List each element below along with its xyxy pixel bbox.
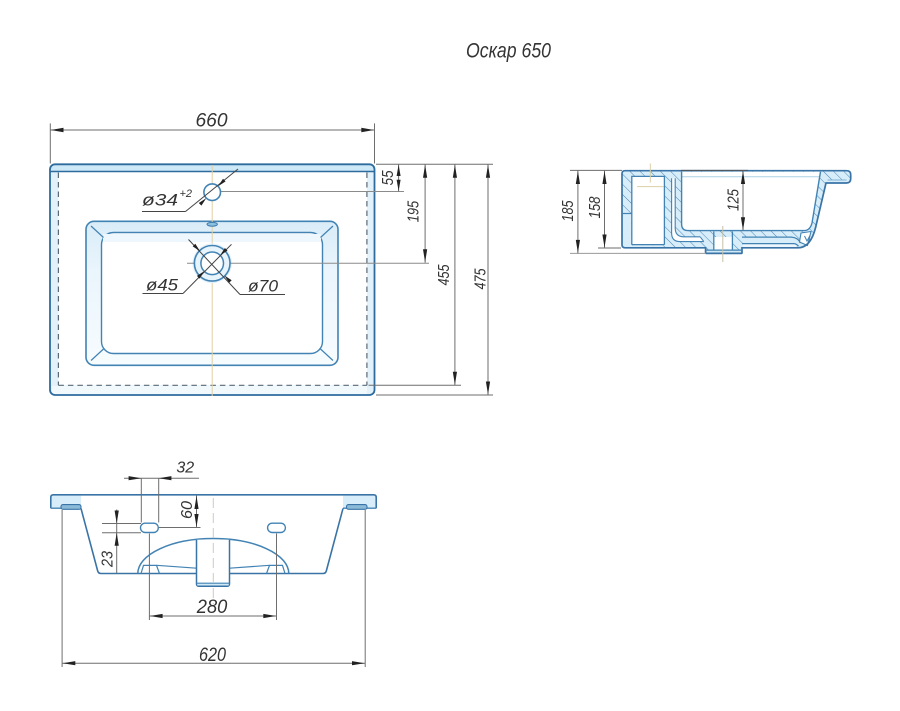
svg-text:23: 23 (100, 551, 117, 568)
svg-text:ø70: ø70 (248, 277, 279, 296)
svg-text:185: 185 (560, 200, 577, 221)
svg-text:455: 455 (436, 264, 453, 285)
svg-text:60: 60 (179, 501, 196, 519)
svg-text:475: 475 (473, 268, 490, 289)
svg-text:ø45: ø45 (146, 276, 179, 295)
svg-text:ø34: ø34 (142, 191, 178, 210)
svg-text:620: 620 (199, 645, 226, 666)
svg-text:Оскар 650: Оскар 650 (466, 40, 551, 63)
svg-text:280: 280 (196, 597, 228, 618)
svg-text:55: 55 (380, 170, 397, 185)
svg-text:158: 158 (587, 196, 604, 218)
svg-text:660: 660 (196, 111, 228, 132)
svg-text:125: 125 (726, 189, 743, 211)
svg-text:195: 195 (406, 201, 423, 223)
svg-text:32: 32 (176, 460, 194, 477)
svg-text:+2: +2 (180, 188, 193, 200)
